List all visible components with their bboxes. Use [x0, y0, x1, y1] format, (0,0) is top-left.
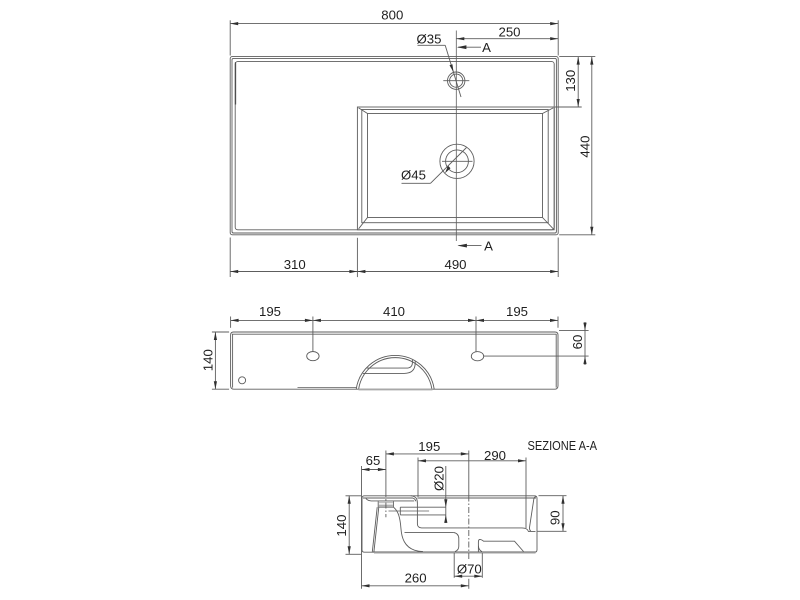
svg-text:90: 90 — [548, 510, 563, 525]
svg-text:260: 260 — [405, 570, 427, 585]
svg-text:Ø20: Ø20 — [431, 466, 446, 491]
svg-text:SEZIONE A-A: SEZIONE A-A — [528, 438, 598, 453]
svg-text:800: 800 — [381, 8, 403, 23]
svg-text:195: 195 — [418, 439, 440, 454]
svg-text:140: 140 — [200, 349, 215, 371]
svg-text:410: 410 — [383, 304, 405, 319]
svg-text:A: A — [484, 239, 493, 254]
svg-text:140: 140 — [334, 515, 349, 537]
svg-text:250: 250 — [498, 25, 520, 40]
svg-text:130: 130 — [563, 70, 578, 92]
svg-text:Ø70: Ø70 — [457, 561, 482, 576]
svg-text:65: 65 — [366, 453, 381, 468]
svg-text:440: 440 — [577, 136, 592, 158]
svg-text:60: 60 — [570, 335, 585, 350]
svg-text:310: 310 — [284, 257, 306, 272]
svg-text:Ø35: Ø35 — [417, 32, 442, 47]
svg-text:490: 490 — [444, 257, 466, 272]
svg-text:Ø45: Ø45 — [401, 168, 426, 183]
svg-text:195: 195 — [259, 304, 281, 319]
svg-text:290: 290 — [484, 448, 506, 463]
svg-text:195: 195 — [506, 304, 528, 319]
svg-text:A: A — [482, 40, 491, 55]
